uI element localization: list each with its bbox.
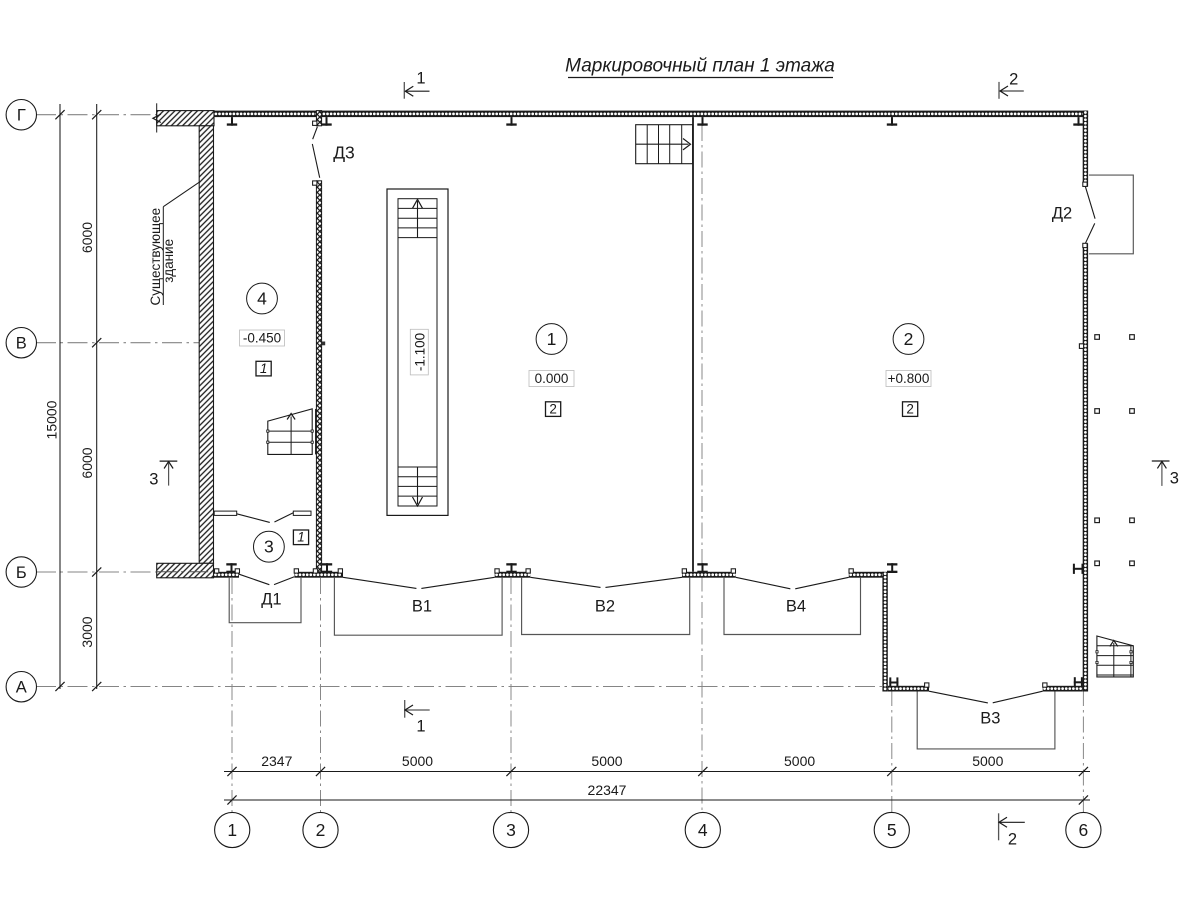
svg-text:5000: 5000 — [784, 753, 815, 769]
svg-text:3: 3 — [149, 471, 158, 489]
svg-text:2347: 2347 — [261, 753, 292, 769]
svg-text:1: 1 — [547, 329, 557, 349]
svg-text:В: В — [16, 335, 27, 353]
svg-text:В1: В1 — [412, 598, 432, 616]
svg-text:2: 2 — [904, 329, 914, 349]
svg-text:6000: 6000 — [79, 447, 95, 478]
svg-text:Д1: Д1 — [261, 591, 281, 609]
svg-text:0.000: 0.000 — [535, 371, 569, 386]
svg-text:5000: 5000 — [591, 753, 622, 769]
svg-text:5000: 5000 — [402, 753, 433, 769]
svg-text:2: 2 — [549, 402, 557, 417]
svg-text:3: 3 — [1170, 470, 1179, 488]
svg-text:15000: 15000 — [44, 400, 60, 439]
svg-text:6000: 6000 — [79, 222, 95, 253]
svg-text:-0.450: -0.450 — [243, 331, 281, 346]
svg-text:2: 2 — [1009, 71, 1018, 89]
svg-text:4: 4 — [257, 289, 267, 309]
svg-text:А: А — [16, 679, 27, 697]
svg-text:5000: 5000 — [972, 753, 1003, 769]
svg-text:3000: 3000 — [79, 616, 95, 647]
svg-text:Г: Г — [17, 107, 26, 125]
svg-text:5: 5 — [887, 820, 897, 840]
svg-text:1: 1 — [260, 361, 268, 376]
svg-text:+0.800: +0.800 — [888, 371, 930, 386]
svg-text:Д3: Д3 — [333, 143, 355, 163]
svg-text:-1.100: -1.100 — [413, 333, 428, 371]
svg-text:1: 1 — [416, 718, 425, 736]
svg-text:1: 1 — [416, 70, 425, 88]
svg-text:2: 2 — [316, 820, 326, 840]
svg-text:3: 3 — [506, 820, 516, 840]
svg-text:3: 3 — [264, 537, 274, 557]
svg-text:4: 4 — [698, 820, 708, 840]
svg-text:2: 2 — [906, 402, 914, 417]
svg-text:6: 6 — [1079, 820, 1089, 840]
svg-text:2: 2 — [1008, 831, 1017, 849]
svg-text:В3: В3 — [980, 710, 1000, 728]
svg-text:Д2: Д2 — [1052, 205, 1072, 223]
svg-text:1: 1 — [227, 820, 237, 840]
svg-text:В2: В2 — [595, 598, 615, 616]
svg-text:22347: 22347 — [588, 782, 627, 798]
svg-text:Б: Б — [16, 564, 27, 582]
svg-text:1: 1 — [297, 530, 305, 545]
svg-text:Маркировочный план 1 этажа: Маркировочный план 1 этажа — [565, 56, 835, 77]
svg-text:В4: В4 — [786, 598, 806, 616]
